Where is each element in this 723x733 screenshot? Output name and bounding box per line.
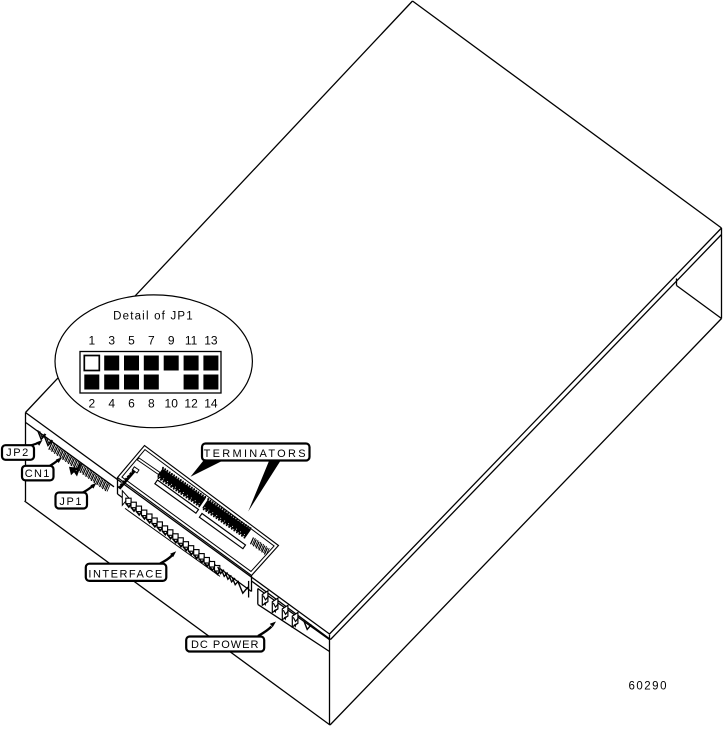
svg-text:12: 12 (184, 397, 198, 411)
svg-text:CN1: CN1 (25, 468, 51, 480)
svg-text:Detail of JP1: Detail of JP1 (113, 311, 194, 323)
svg-text:11: 11 (185, 334, 198, 348)
svg-text:INTERFACE: INTERFACE (88, 568, 163, 580)
svg-text:60290: 60290 (629, 681, 668, 693)
svg-text:JP2: JP2 (6, 447, 30, 459)
svg-text:9: 9 (168, 334, 175, 348)
svg-text:1: 1 (88, 334, 95, 348)
svg-text:4: 4 (108, 397, 115, 411)
svg-text:TERMINATORS: TERMINATORS (204, 448, 308, 460)
svg-text:8: 8 (148, 397, 155, 411)
svg-text:3: 3 (108, 334, 115, 348)
svg-text:10: 10 (165, 397, 179, 411)
svg-text:5: 5 (128, 334, 135, 348)
svg-text:2: 2 (88, 397, 95, 411)
svg-text:JP1: JP1 (59, 496, 83, 508)
svg-text:14: 14 (204, 397, 218, 411)
svg-text:13: 13 (204, 334, 218, 348)
svg-text:6: 6 (128, 397, 135, 411)
svg-text:DC POWER: DC POWER (191, 639, 260, 651)
svg-text:7: 7 (148, 334, 155, 348)
